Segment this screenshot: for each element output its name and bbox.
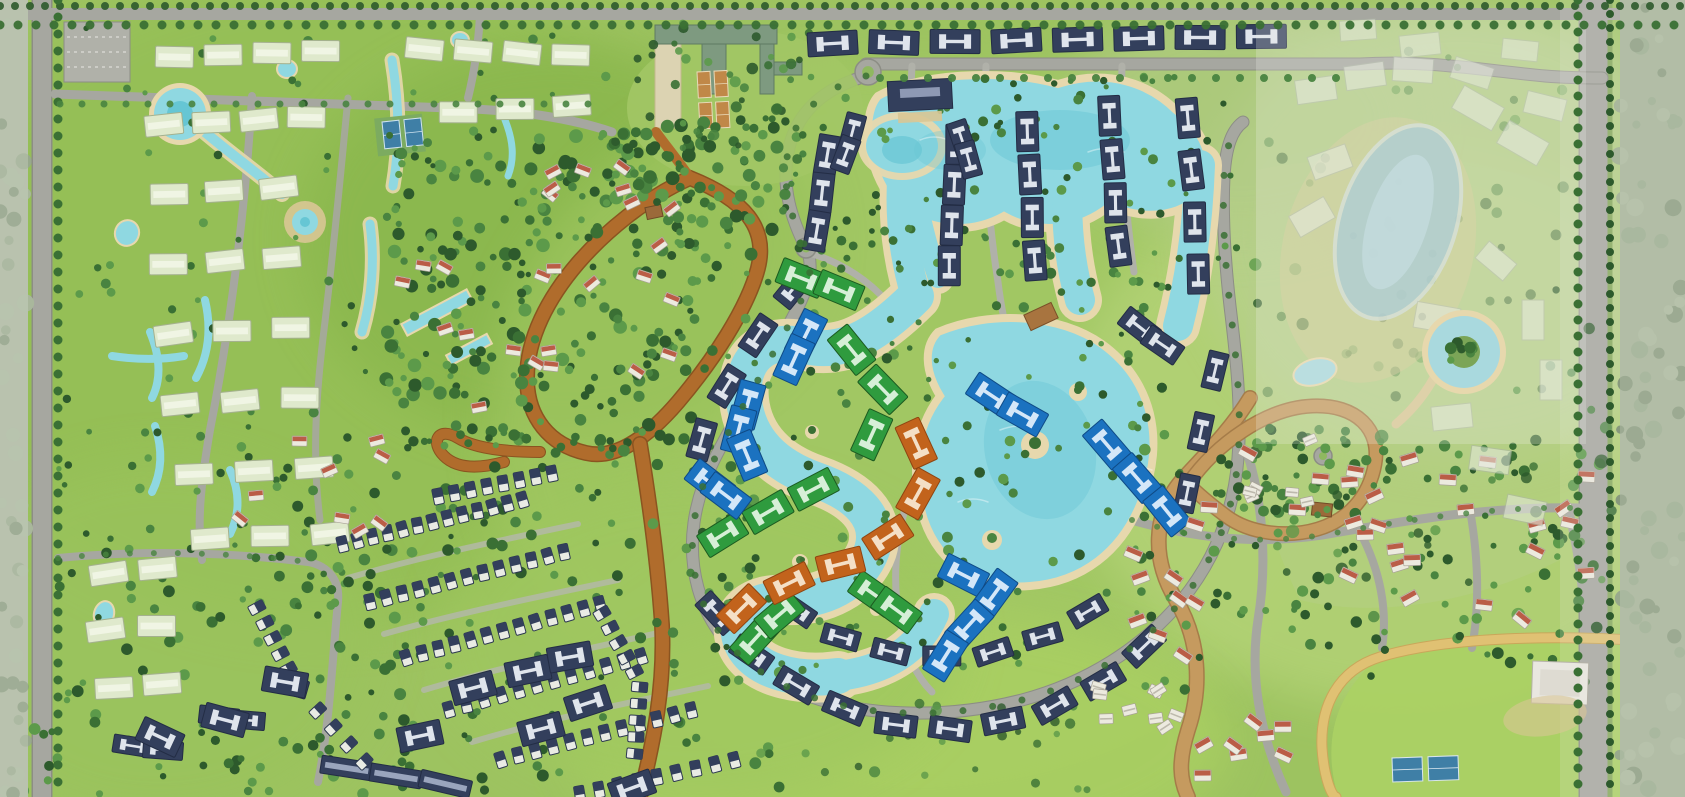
master-plan-rendering [0, 0, 1685, 797]
master-plan-canvas [0, 0, 1685, 797]
entry-parking-lot [64, 22, 130, 82]
ghost-strip-left-fade [0, 0, 28, 797]
site-plan-svg [0, 0, 1685, 797]
ghost-strip-right-fade [1620, 0, 1685, 797]
